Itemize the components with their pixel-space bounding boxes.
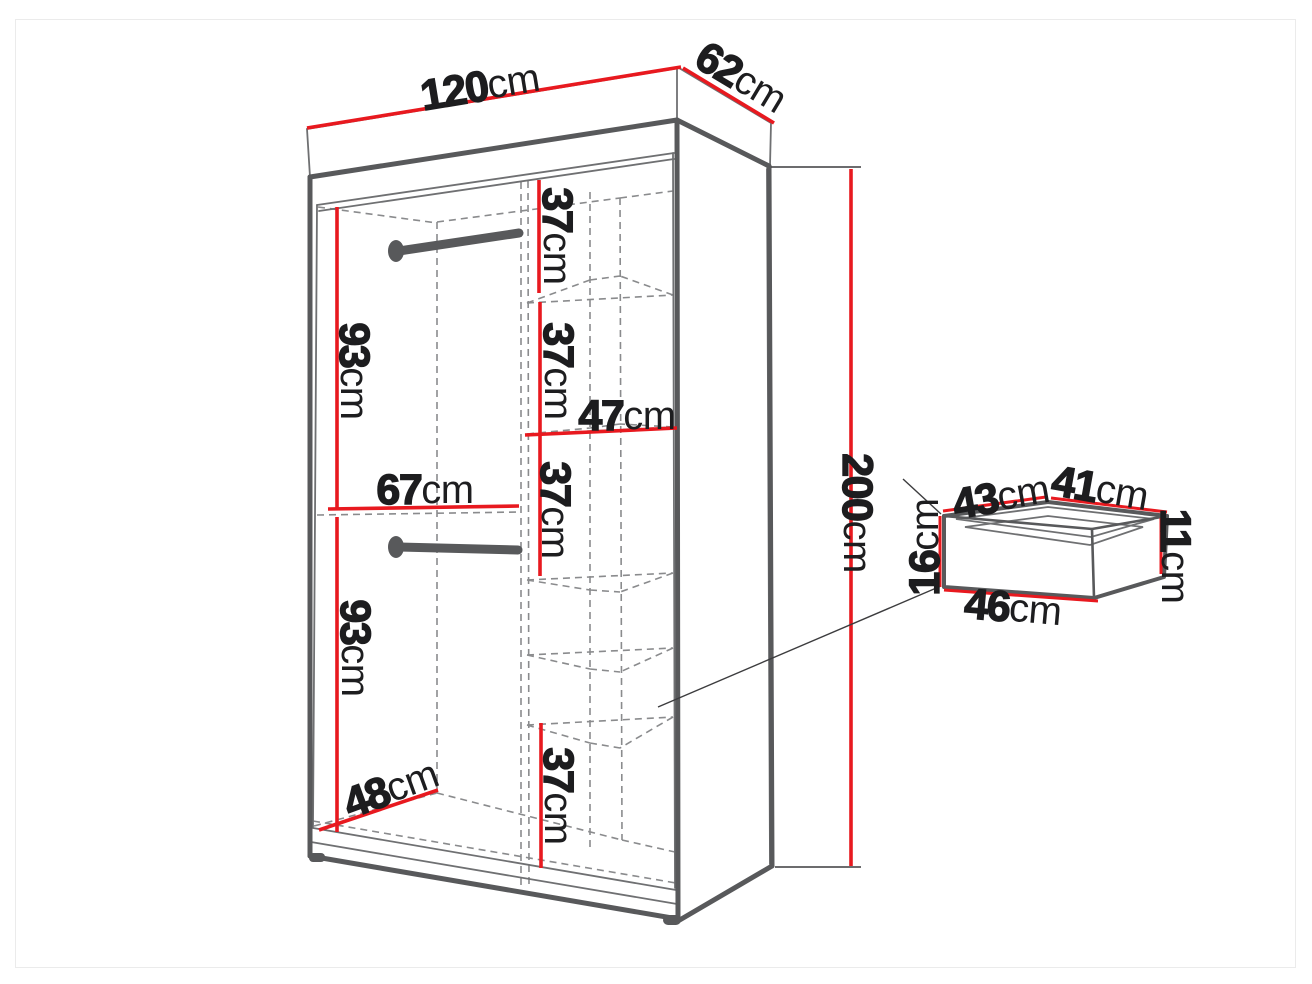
dim-label-shelf-width: 47cm [578,392,675,440]
dim-label-height: 200cm [833,453,881,573]
hanging-rail-lower [399,547,518,550]
dim-label-hanging-lower: 93cm [331,599,379,696]
diagram-page: 120cm 62cm 200cm 37cm 37cm 37cm 37cm 93c… [0,0,1312,984]
dim-label-drawer-back-height: 11cm [1151,509,1199,604]
dim-label-left-width: 67cm [376,466,473,514]
wardrobe-dimension-diagram: 120cm 62cm 200cm 37cm 37cm 37cm 37cm 93c… [0,0,1312,984]
dim-label-shelf-middle: 37cm [531,461,579,558]
dim-label-hanging-upper: 93cm [330,322,378,419]
dim-label-shelf-bottom: 37cm [534,747,582,844]
rail-end-cap-upper [388,240,404,262]
dim-label-drawer-front-height: 16cm [901,498,949,595]
dim-label-shelf-upper: 37cm [534,322,582,419]
rail-end-cap-lower [388,536,404,558]
dim-label-drawer-bottom: 46cm [963,580,1064,636]
dim-label-shelf-top: 37cm [533,187,581,284]
